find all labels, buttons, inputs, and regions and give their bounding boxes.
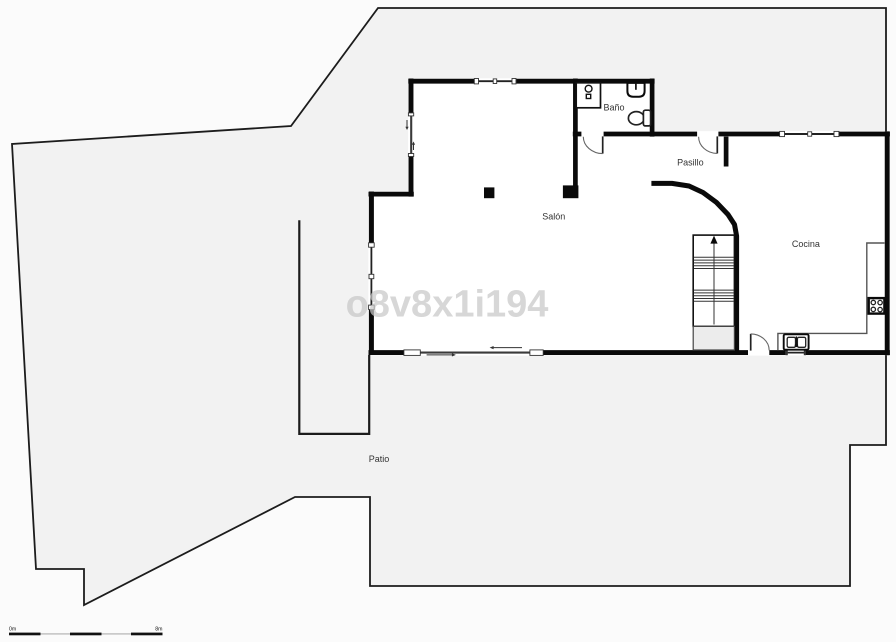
svg-text:Salón: Salón [542,212,565,222]
svg-text:Patio: Patio [369,454,390,464]
svg-text:Baño: Baño [603,102,624,112]
svg-text:0m: 0m [9,627,16,633]
svg-text:o8v8x1i194: o8v8x1i194 [346,284,549,326]
svg-text:8m: 8m [155,627,162,633]
svg-text:Pasillo: Pasillo [677,158,704,168]
svg-text:Cocina: Cocina [792,239,820,249]
